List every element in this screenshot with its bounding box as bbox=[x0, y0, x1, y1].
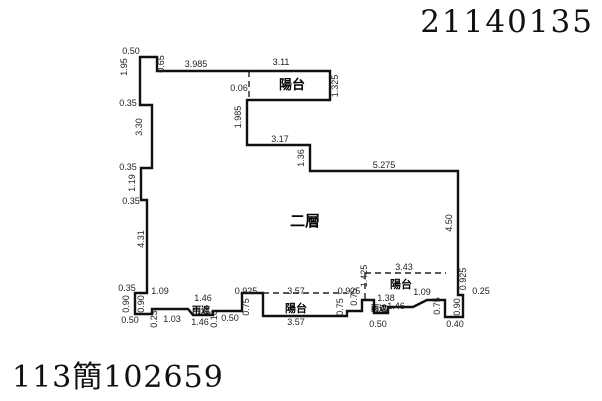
dimension-label: 1.95 bbox=[119, 58, 129, 76]
dimension-label: 1.09 bbox=[151, 286, 169, 296]
dimension-label: 0.90 bbox=[136, 295, 146, 313]
dimension-label: 0.35 bbox=[119, 162, 137, 172]
survey-sheet: 21140135 0.501.950.653.9853.111.3250.061… bbox=[0, 0, 602, 401]
dimension-label: 0.65 bbox=[156, 55, 166, 73]
dimension-label: 3.11 bbox=[273, 57, 290, 67]
dimension-label: 0.75 bbox=[349, 288, 359, 306]
area-label: 二層 bbox=[290, 213, 320, 230]
dimension-label: 0.10 bbox=[209, 310, 219, 328]
dimension-label: 1.03 bbox=[163, 314, 181, 324]
dimension-label: 3.57 bbox=[287, 317, 305, 327]
dimension-label: 0.50 bbox=[369, 319, 387, 329]
area-label: 陽台 bbox=[279, 77, 305, 92]
dimension-label: 3.30 bbox=[134, 118, 144, 136]
floor-plan-svg: 0.501.950.653.9853.111.3250.061.9853.171… bbox=[0, 0, 602, 401]
dimension-label: 0.75 bbox=[432, 297, 442, 315]
dimension-label: 0.35 bbox=[119, 98, 137, 108]
dimension-label: 0.90 bbox=[121, 295, 131, 313]
area-label: 雨遮 bbox=[192, 304, 210, 315]
dimension-label: 0.90 bbox=[452, 298, 462, 316]
dimension-label: 3.43 bbox=[395, 262, 413, 272]
dimension-label: 0.925 bbox=[235, 286, 258, 296]
area-label: 陽台 bbox=[390, 277, 412, 291]
dimension-label: 0.23 bbox=[149, 310, 159, 328]
dimension-label: 1.46 bbox=[194, 293, 212, 303]
dimension-label: 0.35 bbox=[122, 196, 140, 206]
dimension-label: 0.75 bbox=[335, 298, 345, 316]
dimension-label: 0.35 bbox=[118, 283, 136, 293]
dimension-label: 1.325 bbox=[330, 75, 340, 98]
dimension-label: 0.50 bbox=[122, 46, 140, 56]
dimension-label: 1.19 bbox=[127, 174, 137, 192]
dimension-label: 3.985 bbox=[185, 59, 208, 69]
dimension-label: 1.985 bbox=[233, 106, 243, 129]
dimension-label: 0.50 bbox=[221, 313, 239, 323]
case-file-number: 113簡102659 bbox=[12, 352, 224, 396]
area-label: 陽台 bbox=[285, 301, 307, 315]
dimension-label: 1.46 bbox=[387, 301, 405, 311]
dimension-label: 4.31 bbox=[136, 230, 146, 248]
dimension-label: 0.40 bbox=[446, 319, 464, 329]
dimension-label: 3.17 bbox=[271, 134, 289, 144]
dimension-label: 0.25 bbox=[472, 286, 490, 296]
dimension-label: 0.06 bbox=[230, 83, 248, 93]
dimension-label: 1.36 bbox=[296, 149, 306, 167]
dimension-label: 1.46 bbox=[191, 317, 209, 327]
dimension-label: 1.09 bbox=[413, 287, 431, 297]
dimension-label: 5.275 bbox=[373, 160, 396, 170]
dimension-label: 1.425 bbox=[359, 265, 369, 288]
area-label: 雨遮 bbox=[371, 303, 387, 313]
dimension-label: 0.75 bbox=[241, 298, 251, 316]
dimension-label: 4.50 bbox=[444, 214, 454, 232]
dimension-label: 0.925 bbox=[458, 268, 468, 291]
building-outline bbox=[135, 57, 463, 317]
dimension-label: 3.57 bbox=[287, 286, 305, 296]
dimension-label: 0.50 bbox=[121, 315, 139, 325]
